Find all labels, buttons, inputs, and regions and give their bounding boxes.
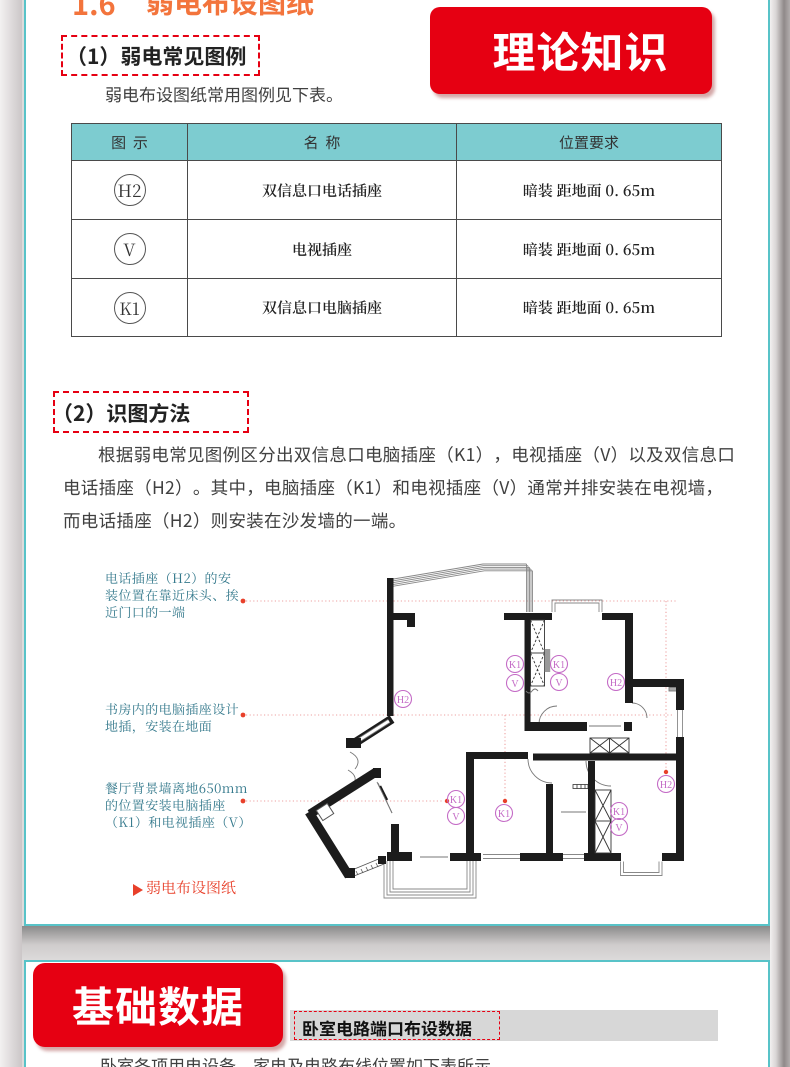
svg-text:K1: K1 [553, 660, 565, 671]
svg-text:K1: K1 [509, 660, 521, 671]
svg-text:K1: K1 [613, 807, 625, 818]
svg-text:H2: H2 [397, 695, 409, 706]
svg-text:V: V [555, 678, 563, 689]
svg-text:V: V [615, 823, 623, 834]
svg-text:H2: H2 [610, 678, 622, 689]
svg-text:H2: H2 [660, 780, 672, 791]
svg-text:K1: K1 [450, 795, 462, 806]
svg-text:V: V [511, 679, 519, 690]
svg-text:V: V [452, 812, 460, 823]
svg-text:K1: K1 [498, 809, 510, 820]
